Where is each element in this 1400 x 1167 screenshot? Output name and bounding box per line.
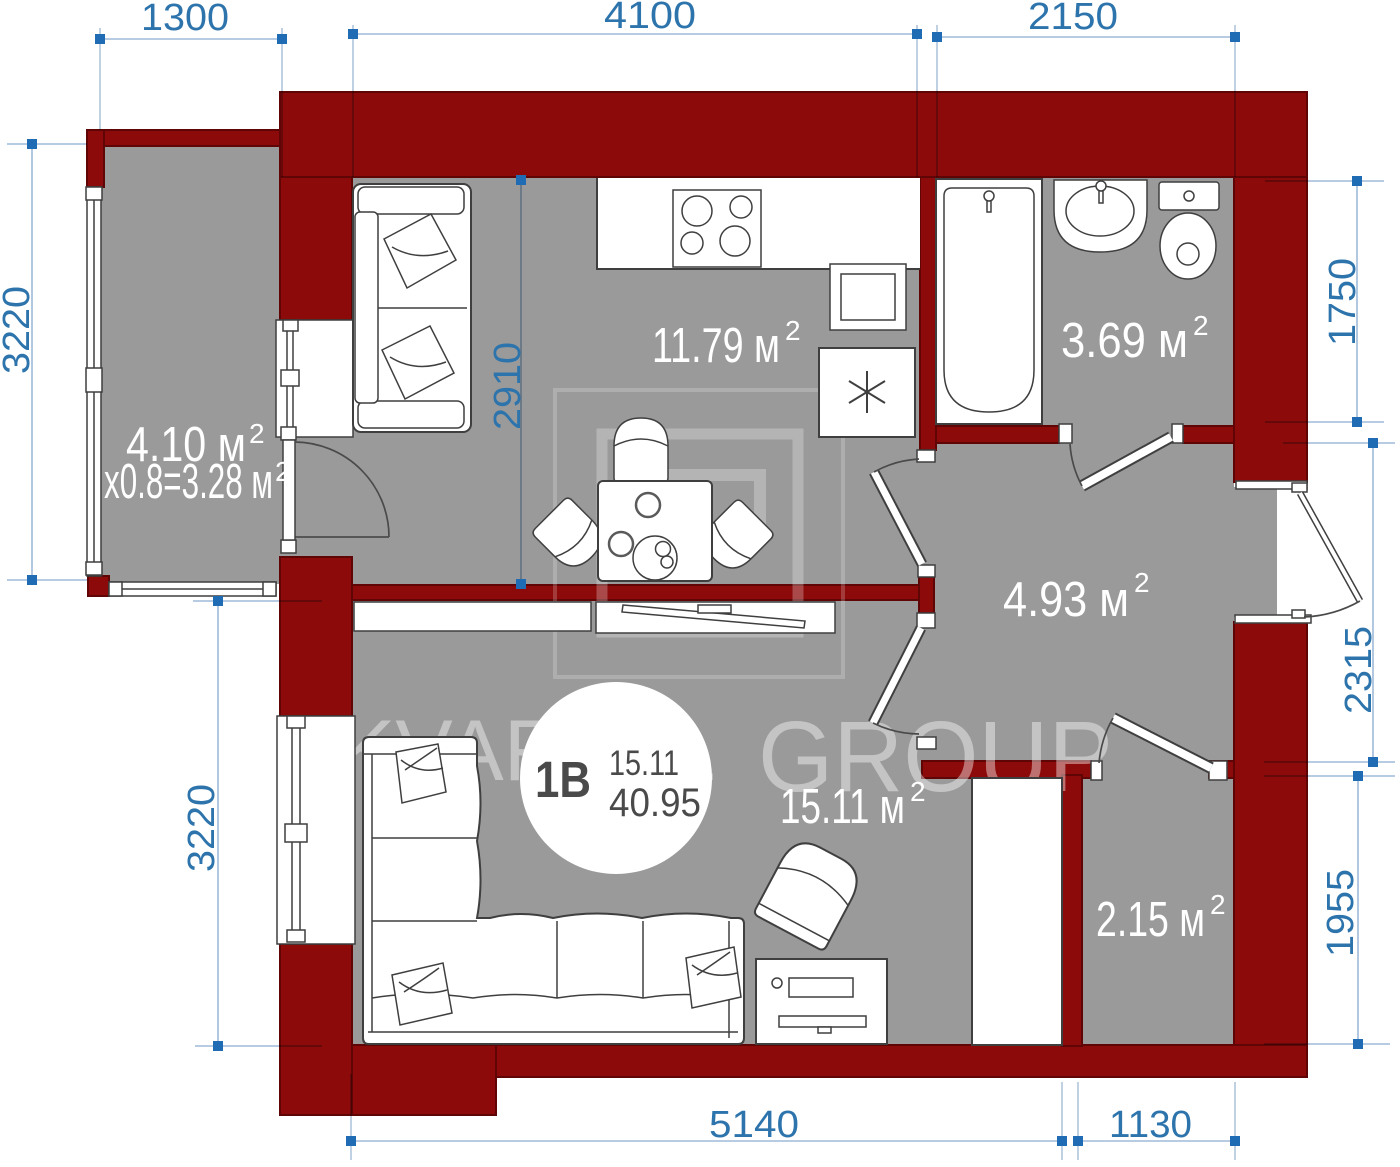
svg-text:15.11 м: 15.11 м — [780, 780, 905, 834]
svg-text:40.95: 40.95 — [609, 781, 701, 825]
svg-text:1300: 1300 — [141, 0, 229, 39]
svg-text:2910: 2910 — [487, 342, 529, 430]
svg-text:1955: 1955 — [1320, 869, 1362, 957]
svg-text:2: 2 — [1193, 310, 1209, 341]
svg-text:3.69 м: 3.69 м — [1061, 314, 1188, 368]
svg-text:2: 2 — [910, 776, 926, 807]
svg-text:4100: 4100 — [604, 0, 696, 37]
svg-text:1750: 1750 — [1322, 258, 1364, 346]
svg-text:2.15 м: 2.15 м — [1096, 893, 1205, 947]
svg-text:2: 2 — [249, 418, 265, 449]
svg-text:2315: 2315 — [1338, 626, 1380, 714]
svg-text:2: 2 — [1134, 567, 1150, 598]
svg-text:х0.8=3.28 м: х0.8=3.28 м — [104, 455, 273, 509]
svg-text:2: 2 — [785, 315, 801, 346]
svg-text:15.11: 15.11 — [609, 744, 679, 783]
svg-text:3220: 3220 — [181, 784, 223, 872]
svg-text:5140: 5140 — [709, 1104, 799, 1146]
svg-text:2150: 2150 — [1028, 0, 1118, 38]
svg-text:11.79 м: 11.79 м — [652, 319, 780, 373]
svg-text:1В: 1В — [535, 751, 591, 808]
svg-text:2: 2 — [1210, 889, 1226, 920]
svg-text:3220: 3220 — [0, 286, 38, 374]
svg-text:1130: 1130 — [1109, 1104, 1192, 1146]
svg-text:2: 2 — [275, 456, 291, 487]
svg-text:4.93 м: 4.93 м — [1003, 573, 1129, 627]
